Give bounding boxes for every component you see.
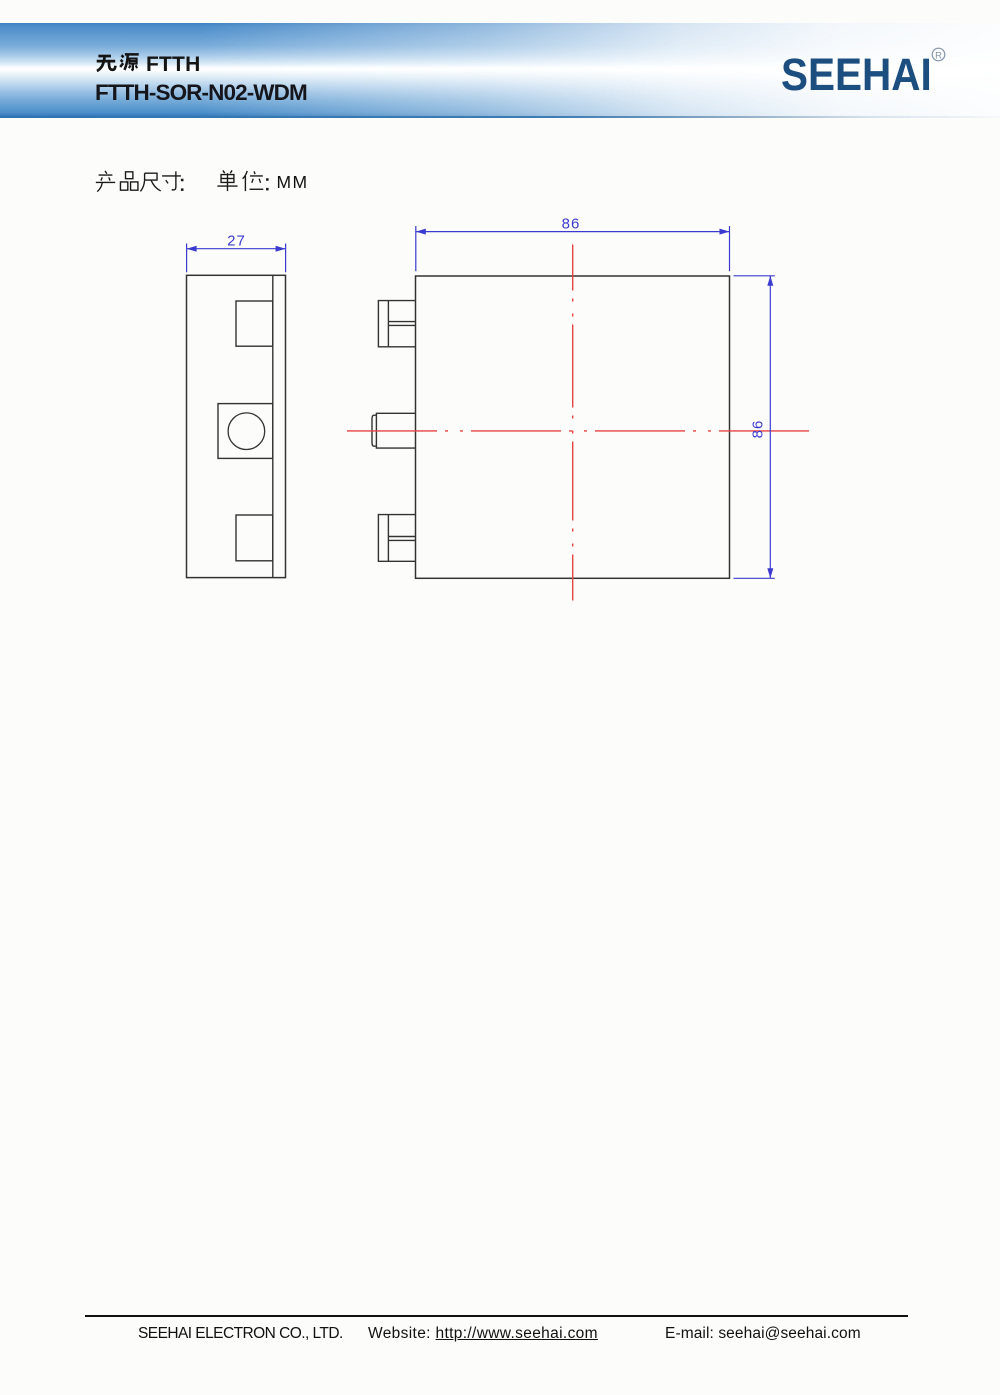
svg-text:86: 86: [562, 216, 581, 233]
svg-text:27: 27: [227, 233, 246, 250]
svg-text:86: 86: [750, 420, 767, 439]
